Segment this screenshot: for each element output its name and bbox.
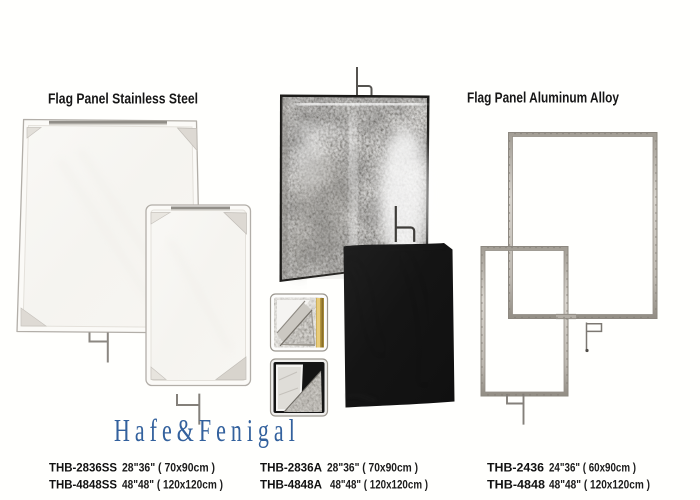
svg-text:28"36" ( 70x90cm ): 28"36" ( 70x90cm ) [122,462,215,475]
svg-text:24"36" ( 60x90cm ): 24"36" ( 60x90cm ) [549,462,636,475]
svg-text:48"48" ( 120x120cm ): 48"48" ( 120x120cm ) [549,479,650,492]
svg-text:28"36" ( 70x90cm ): 28"36" ( 70x90cm ) [327,462,418,475]
svg-text:THB-4848A: THB-4848A [260,478,322,492]
svg-text:Flag Panel Aluminum Alloy: Flag Panel Aluminum Alloy [467,91,619,107]
svg-text:48"48" ( 120x120cm ): 48"48" ( 120x120cm ) [122,479,223,492]
svg-text:Hafe&Fenigal: Hafe&Fenigal [114,413,300,448]
svg-text:48"48" ( 120x120cm ): 48"48" ( 120x120cm ) [330,479,428,492]
svg-text:THB-2836SS: THB-2836SS [49,461,117,475]
svg-text:THB-2836A: THB-2836A [260,461,322,475]
svg-text:THB-2436: THB-2436 [487,461,544,475]
svg-text:Flag Panel Stainless Steel: Flag Panel Stainless Steel [48,92,198,108]
svg-text:THB-4848: THB-4848 [487,478,545,492]
svg-text:THB-4848SS: THB-4848SS [49,478,117,492]
